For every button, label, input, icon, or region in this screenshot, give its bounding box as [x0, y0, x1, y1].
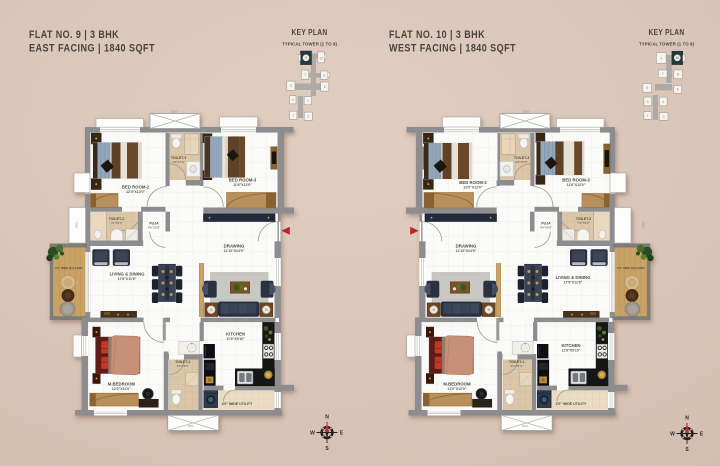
svg-text:5'0"X8'4": 5'0"X8'4": [177, 364, 189, 368]
svg-text:10: 10: [319, 57, 323, 61]
svg-text:5'0" WIDE BALCONY: 5'0" WIDE BALCONY: [55, 266, 83, 270]
svg-text:KITCHEN: KITCHEN: [561, 343, 580, 348]
svg-text:BED ROOM-2: BED ROOM-2: [459, 180, 487, 185]
svg-text:9: 9: [660, 56, 662, 60]
svg-text:1: 1: [292, 114, 294, 118]
svg-text:4'6"X5'6": 4'6"X5'6": [540, 225, 552, 229]
svg-text:DOU: DOU: [523, 109, 529, 113]
svg-text:12'0"X12'0": 12'0"X12'0": [448, 387, 467, 391]
svg-text:7'6"X5'0": 7'6"X5'0": [110, 221, 122, 225]
svg-text:3: 3: [292, 98, 294, 102]
svg-text:N: N: [325, 415, 329, 421]
svg-text:DRAWING: DRAWING: [456, 243, 477, 248]
svg-text:DRAWING: DRAWING: [224, 243, 245, 248]
svg-text:6: 6: [677, 88, 679, 92]
svg-text:12'0"X12'0": 12'0"X12'0": [126, 190, 145, 194]
svg-text:2'6"X7'5": 2'6"X7'5": [172, 160, 184, 164]
svg-text:4'6"X5'6": 4'6"X5'6": [148, 225, 160, 229]
svg-text:FLAT NO. 9 | 3 BHK: FLAT NO. 9 | 3 BHK: [29, 29, 119, 41]
svg-text:11'6"X9'10": 11'6"X9'10": [226, 337, 245, 341]
svg-text:M.BEDROOM: M.BEDROOM: [108, 381, 136, 386]
svg-text:4'0" WIDE UTILITY: 4'0" WIDE UTILITY: [222, 402, 253, 406]
svg-text:M.BEDROOM: M.BEDROOM: [443, 381, 471, 386]
svg-text:11'10"X14'9": 11'10"X14'9": [456, 249, 477, 253]
svg-text:DOU: DOU: [522, 424, 528, 428]
svg-text:4: 4: [307, 99, 309, 103]
svg-text:W: W: [310, 431, 315, 437]
svg-text:5: 5: [646, 86, 648, 90]
svg-text:BED ROOM-3: BED ROOM-3: [562, 177, 590, 182]
svg-text:7: 7: [662, 72, 664, 76]
svg-text:5: 5: [290, 84, 292, 88]
svg-text:11'6"X12'0": 11'6"X12'0": [233, 183, 252, 187]
svg-text:DOU: DOU: [171, 109, 177, 113]
svg-text:LIVING & DINING: LIVING & DINING: [556, 275, 592, 280]
svg-text:DOU: DOU: [642, 222, 646, 228]
svg-text:WEST FACING | 1840 SQFT: WEST FACING | 1840 SQFT: [389, 43, 516, 55]
svg-text:5'0"X8'4": 5'0"X8'4": [510, 364, 522, 368]
svg-text:1: 1: [647, 114, 649, 118]
svg-text:EAST FACING | 1840 SQFT: EAST FACING | 1840 SQFT: [29, 43, 155, 55]
svg-text:3: 3: [647, 100, 649, 104]
svg-text:BED ROOM-2: BED ROOM-2: [122, 184, 150, 189]
svg-text:9: 9: [305, 56, 307, 60]
svg-text:5'0" WIDE BALCONY: 5'0" WIDE BALCONY: [617, 266, 645, 270]
svg-text:DOU: DOU: [74, 222, 78, 228]
svg-text:2: 2: [307, 114, 309, 118]
svg-text:TYPICAL TOWER (1 TO 9): TYPICAL TOWER (1 TO 9): [639, 41, 694, 46]
svg-text:N: N: [685, 416, 689, 422]
svg-text:2: 2: [663, 115, 665, 119]
svg-text:KEY PLAN: KEY PLAN: [292, 27, 328, 37]
svg-text:BED ROOM-3: BED ROOM-3: [229, 177, 257, 182]
svg-text:TYPICAL TOWER (1 TO 9): TYPICAL TOWER (1 TO 9): [282, 41, 337, 46]
svg-text:11'10"X14'9": 11'10"X14'9": [224, 249, 245, 253]
svg-text:6: 6: [324, 85, 326, 89]
svg-text:11'6"X12'0": 11'6"X12'0": [567, 183, 586, 187]
svg-text:10: 10: [676, 56, 680, 60]
svg-text:KEY PLAN: KEY PLAN: [649, 27, 685, 37]
svg-text:8: 8: [323, 73, 325, 77]
svg-text:7'6"X5'0": 7'6"X5'0": [577, 221, 589, 225]
svg-text:12'0"X12'0": 12'0"X12'0": [464, 186, 483, 190]
svg-text:17'6"X11'6": 17'6"X11'6": [118, 277, 137, 281]
svg-text:12'0"X12'0": 12'0"X12'0": [112, 387, 131, 391]
svg-text:KITCHEN: KITCHEN: [226, 331, 245, 336]
svg-text:FLAT NO. 10 | 3 BHK: FLAT NO. 10 | 3 BHK: [389, 29, 485, 41]
svg-text:DOU: DOU: [188, 424, 194, 428]
svg-text:11'6"X9'10": 11'6"X9'10": [562, 349, 581, 353]
svg-text:4'0" WIDE UTILITY: 4'0" WIDE UTILITY: [556, 402, 587, 406]
svg-text:8: 8: [677, 73, 679, 77]
svg-text:4: 4: [662, 100, 664, 104]
svg-text:7: 7: [304, 73, 306, 77]
svg-text:17'6"X11'6": 17'6"X11'6": [564, 281, 583, 285]
svg-text:W: W: [670, 432, 675, 438]
svg-text:2'6"X7'5": 2'6"X7'5": [515, 160, 527, 164]
svg-text:LIVING & DINING: LIVING & DINING: [110, 271, 146, 276]
